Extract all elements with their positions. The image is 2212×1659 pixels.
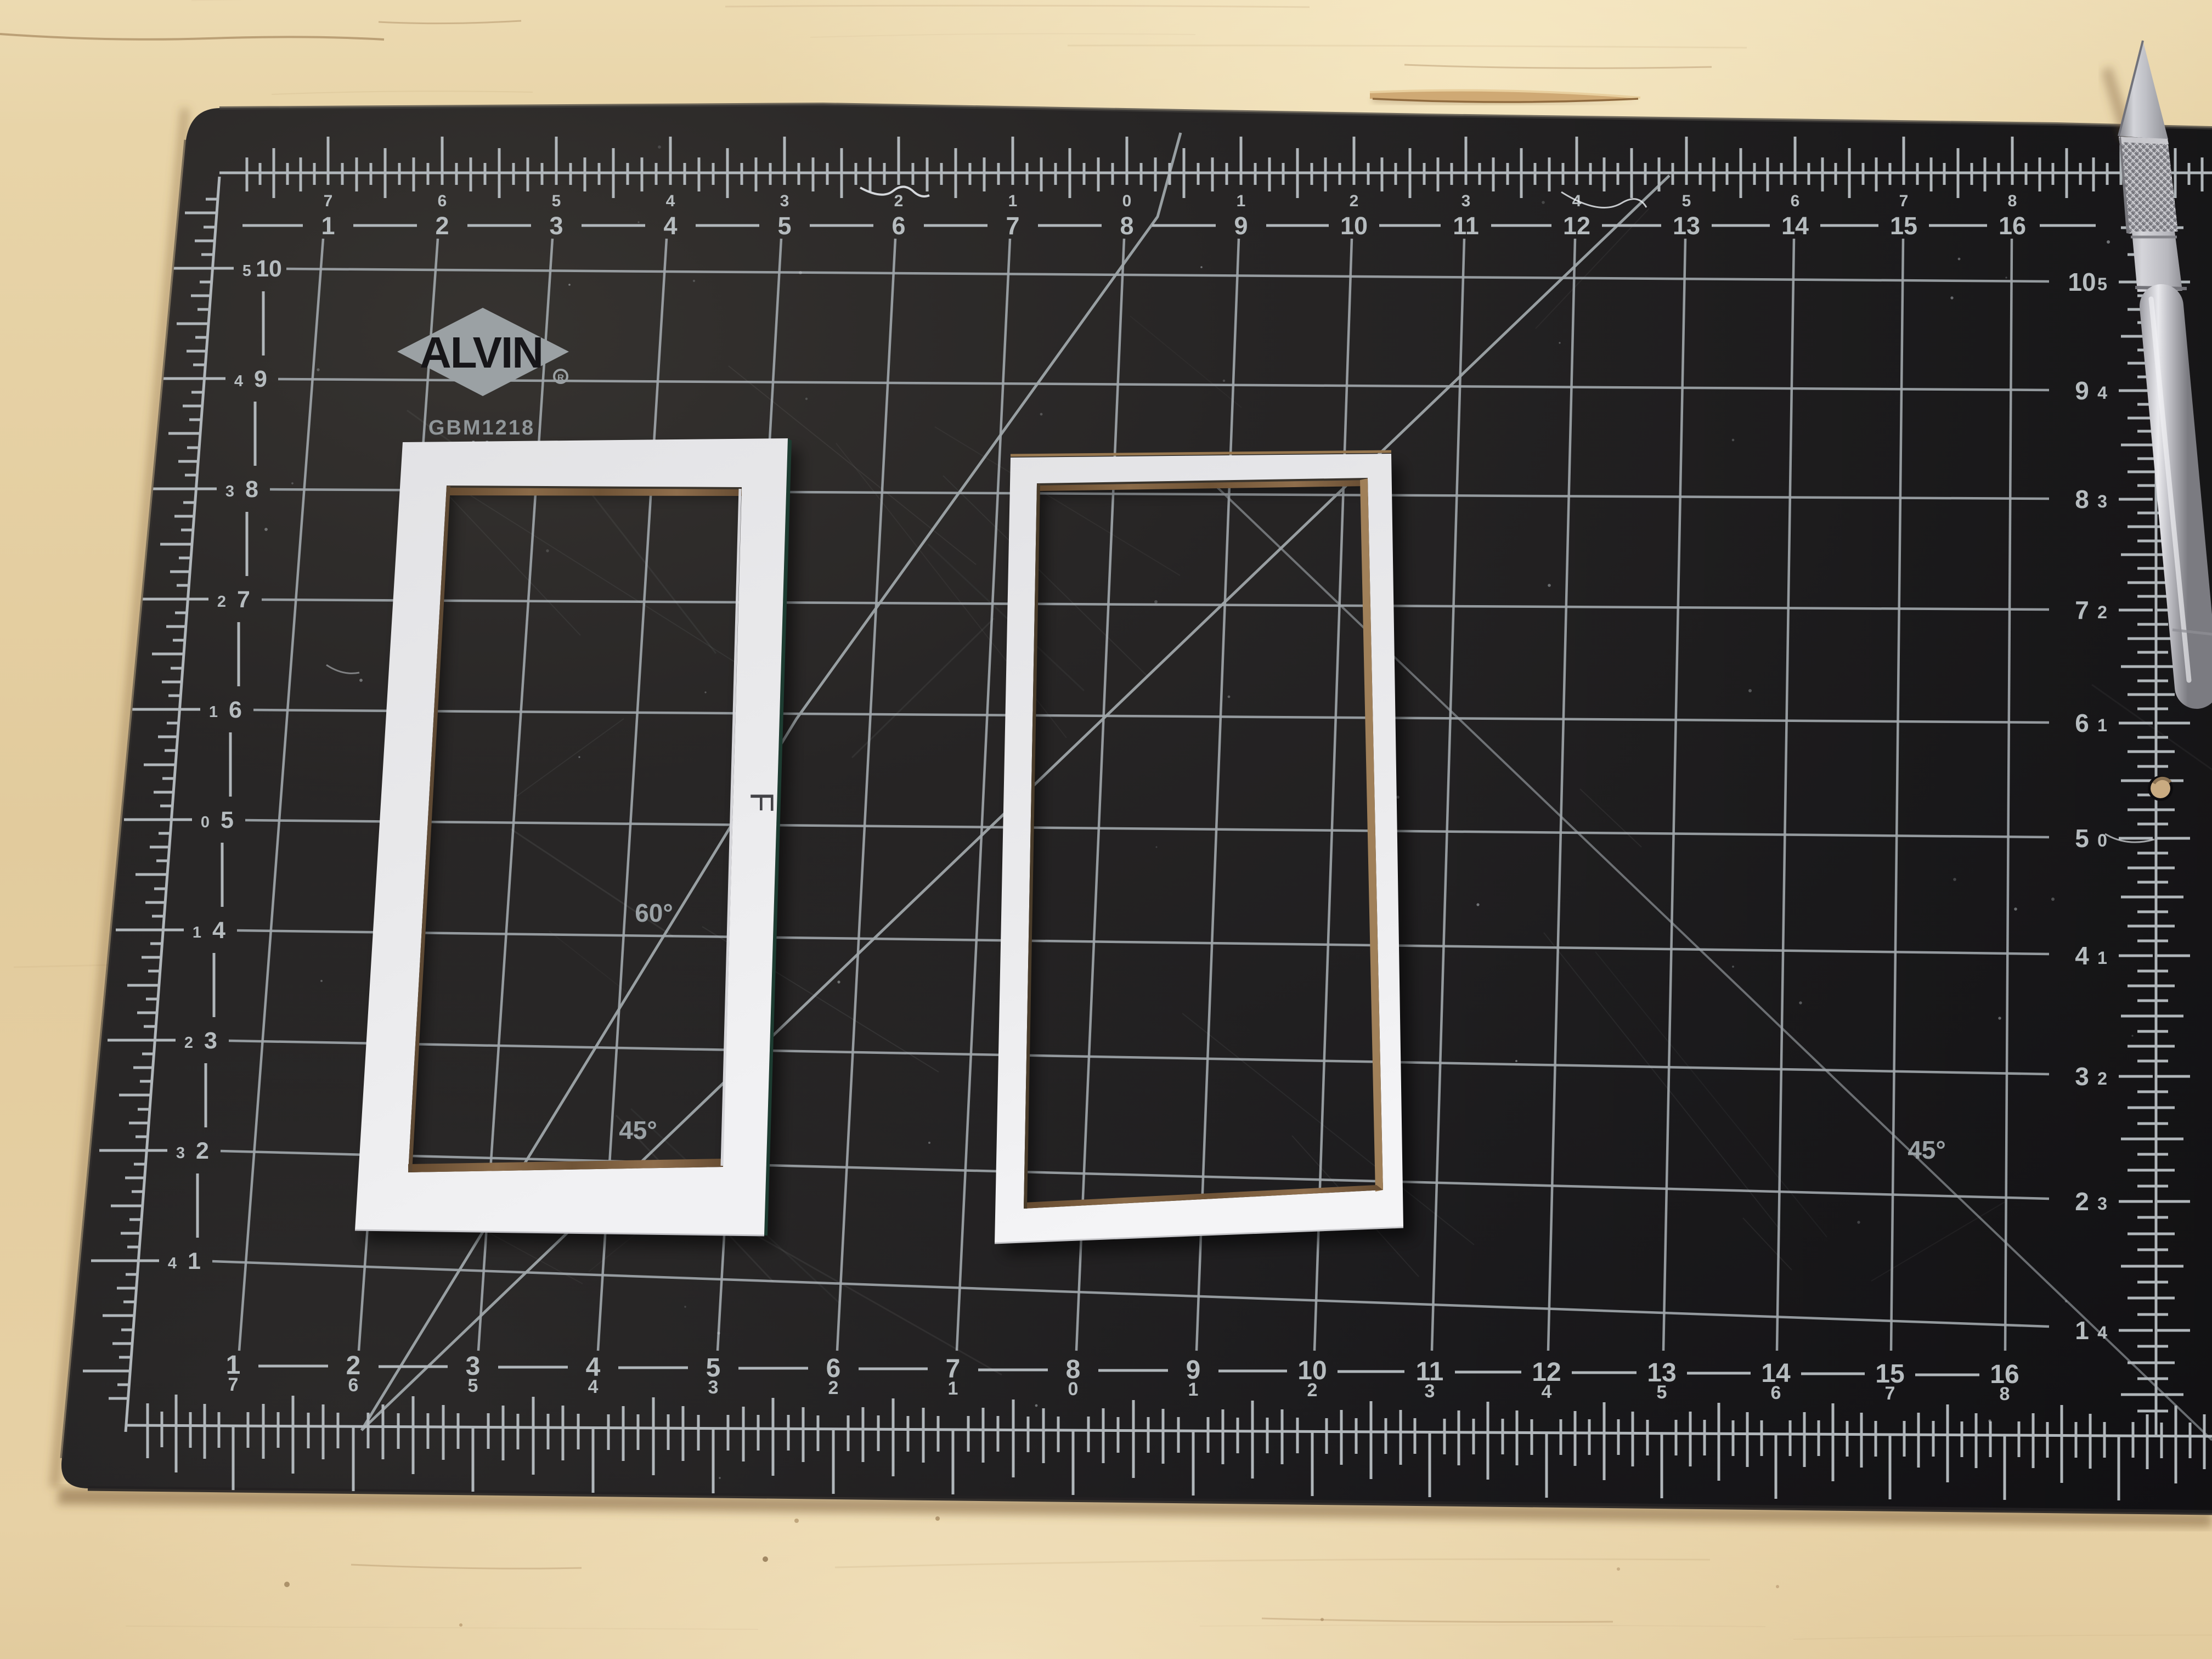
svg-text:6: 6 [891, 212, 905, 240]
svg-text:2: 2 [2097, 1069, 2107, 1088]
svg-text:10: 10 [256, 256, 282, 282]
svg-text:3: 3 [708, 1377, 719, 1398]
svg-text:8: 8 [2000, 1384, 2010, 1404]
svg-text:5: 5 [1657, 1382, 1667, 1403]
svg-text:7: 7 [2075, 596, 2089, 624]
svg-text:2: 2 [435, 212, 449, 240]
svg-text:7: 7 [1899, 192, 1909, 210]
svg-text:8: 8 [2075, 485, 2089, 513]
svg-text:4: 4 [234, 373, 243, 390]
svg-text:ALVIN: ALVIN [420, 328, 543, 377]
svg-text:4: 4 [666, 192, 675, 210]
svg-text:0: 0 [201, 814, 210, 831]
svg-text:4: 4 [1542, 1381, 1552, 1402]
svg-text:2: 2 [2097, 602, 2107, 622]
svg-text:16: 16 [1999, 212, 2026, 240]
svg-text:6: 6 [438, 192, 447, 210]
svg-text:14: 14 [1781, 212, 1809, 240]
svg-text:7: 7 [1006, 212, 1019, 240]
svg-text:2: 2 [1307, 1380, 1318, 1401]
svg-text:8: 8 [2008, 192, 2017, 210]
svg-text:6: 6 [348, 1375, 359, 1396]
svg-text:0: 0 [1122, 192, 1132, 210]
svg-text:9: 9 [2075, 376, 2089, 405]
svg-text:3: 3 [780, 192, 789, 210]
svg-text:5: 5 [552, 192, 561, 210]
svg-text:7: 7 [1885, 1383, 1895, 1404]
svg-text:1: 1 [2075, 1316, 2089, 1345]
svg-text:0: 0 [1068, 1379, 1079, 1400]
svg-text:3: 3 [2075, 1062, 2089, 1091]
svg-text:2: 2 [217, 593, 226, 611]
svg-text:45°: 45° [1908, 1136, 1946, 1164]
svg-text:1: 1 [321, 212, 335, 240]
svg-text:3: 3 [1425, 1381, 1435, 1402]
svg-text:1: 1 [1237, 192, 1246, 210]
svg-text:6: 6 [2075, 709, 2089, 737]
svg-text:1: 1 [948, 1378, 958, 1399]
svg-text:5: 5 [468, 1375, 478, 1396]
svg-text:9: 9 [254, 366, 267, 392]
svg-text:1: 1 [188, 1248, 201, 1274]
svg-text:8: 8 [245, 476, 258, 503]
svg-text:4: 4 [2097, 1323, 2107, 1342]
svg-text:4: 4 [2097, 383, 2107, 403]
svg-text:6: 6 [1771, 1383, 1781, 1403]
svg-text:7: 7 [324, 192, 333, 210]
svg-text:1: 1 [193, 924, 201, 941]
svg-text:2: 2 [894, 192, 904, 210]
svg-text:12: 12 [1563, 212, 1590, 240]
svg-text:7: 7 [237, 586, 250, 613]
svg-text:3: 3 [2097, 1194, 2107, 1214]
svg-text:45°: 45° [619, 1116, 657, 1144]
svg-text:5: 5 [242, 262, 251, 280]
svg-text:4: 4 [2075, 941, 2089, 970]
svg-text:4: 4 [168, 1255, 177, 1272]
svg-text:2: 2 [2075, 1187, 2089, 1216]
svg-text:3: 3 [1462, 192, 1471, 210]
svg-text:1: 1 [2097, 948, 2107, 968]
svg-text:5: 5 [777, 212, 791, 240]
svg-text:3: 3 [2097, 492, 2107, 511]
svg-text:6: 6 [229, 697, 242, 723]
svg-text:11: 11 [1453, 212, 1479, 240]
svg-text:5: 5 [2075, 824, 2089, 853]
svg-text:R: R [557, 373, 564, 383]
svg-text:13: 13 [1673, 212, 1700, 240]
svg-text:1: 1 [209, 703, 218, 721]
svg-text:3: 3 [225, 483, 234, 500]
svg-text:6: 6 [1791, 192, 1800, 210]
svg-text:1: 1 [1188, 1379, 1199, 1400]
svg-text:4: 4 [588, 1376, 599, 1397]
svg-text:3: 3 [204, 1028, 217, 1054]
svg-text:15: 15 [1890, 212, 1917, 240]
svg-text:GBM1218: GBM1218 [428, 416, 535, 439]
svg-text:1: 1 [2097, 715, 2107, 735]
svg-text:1: 1 [1008, 192, 1018, 210]
svg-text:2: 2 [1350, 192, 1359, 210]
svg-text:7: 7 [228, 1374, 239, 1395]
svg-text:2: 2 [828, 1378, 839, 1398]
svg-text:3: 3 [176, 1144, 185, 1162]
svg-text:10: 10 [2068, 268, 2096, 296]
svg-text:4: 4 [212, 917, 225, 944]
svg-text:2: 2 [184, 1034, 193, 1052]
svg-text:5: 5 [2097, 274, 2107, 294]
svg-text:10: 10 [1340, 212, 1368, 240]
svg-text:4: 4 [663, 212, 677, 240]
svg-text:9: 9 [1234, 212, 1248, 240]
svg-text:2: 2 [196, 1138, 209, 1164]
svg-text:8: 8 [1120, 212, 1133, 240]
svg-text:3: 3 [549, 212, 563, 240]
svg-text:5: 5 [221, 807, 234, 833]
svg-text:5: 5 [1682, 192, 1691, 210]
svg-text:F: F [743, 792, 780, 812]
